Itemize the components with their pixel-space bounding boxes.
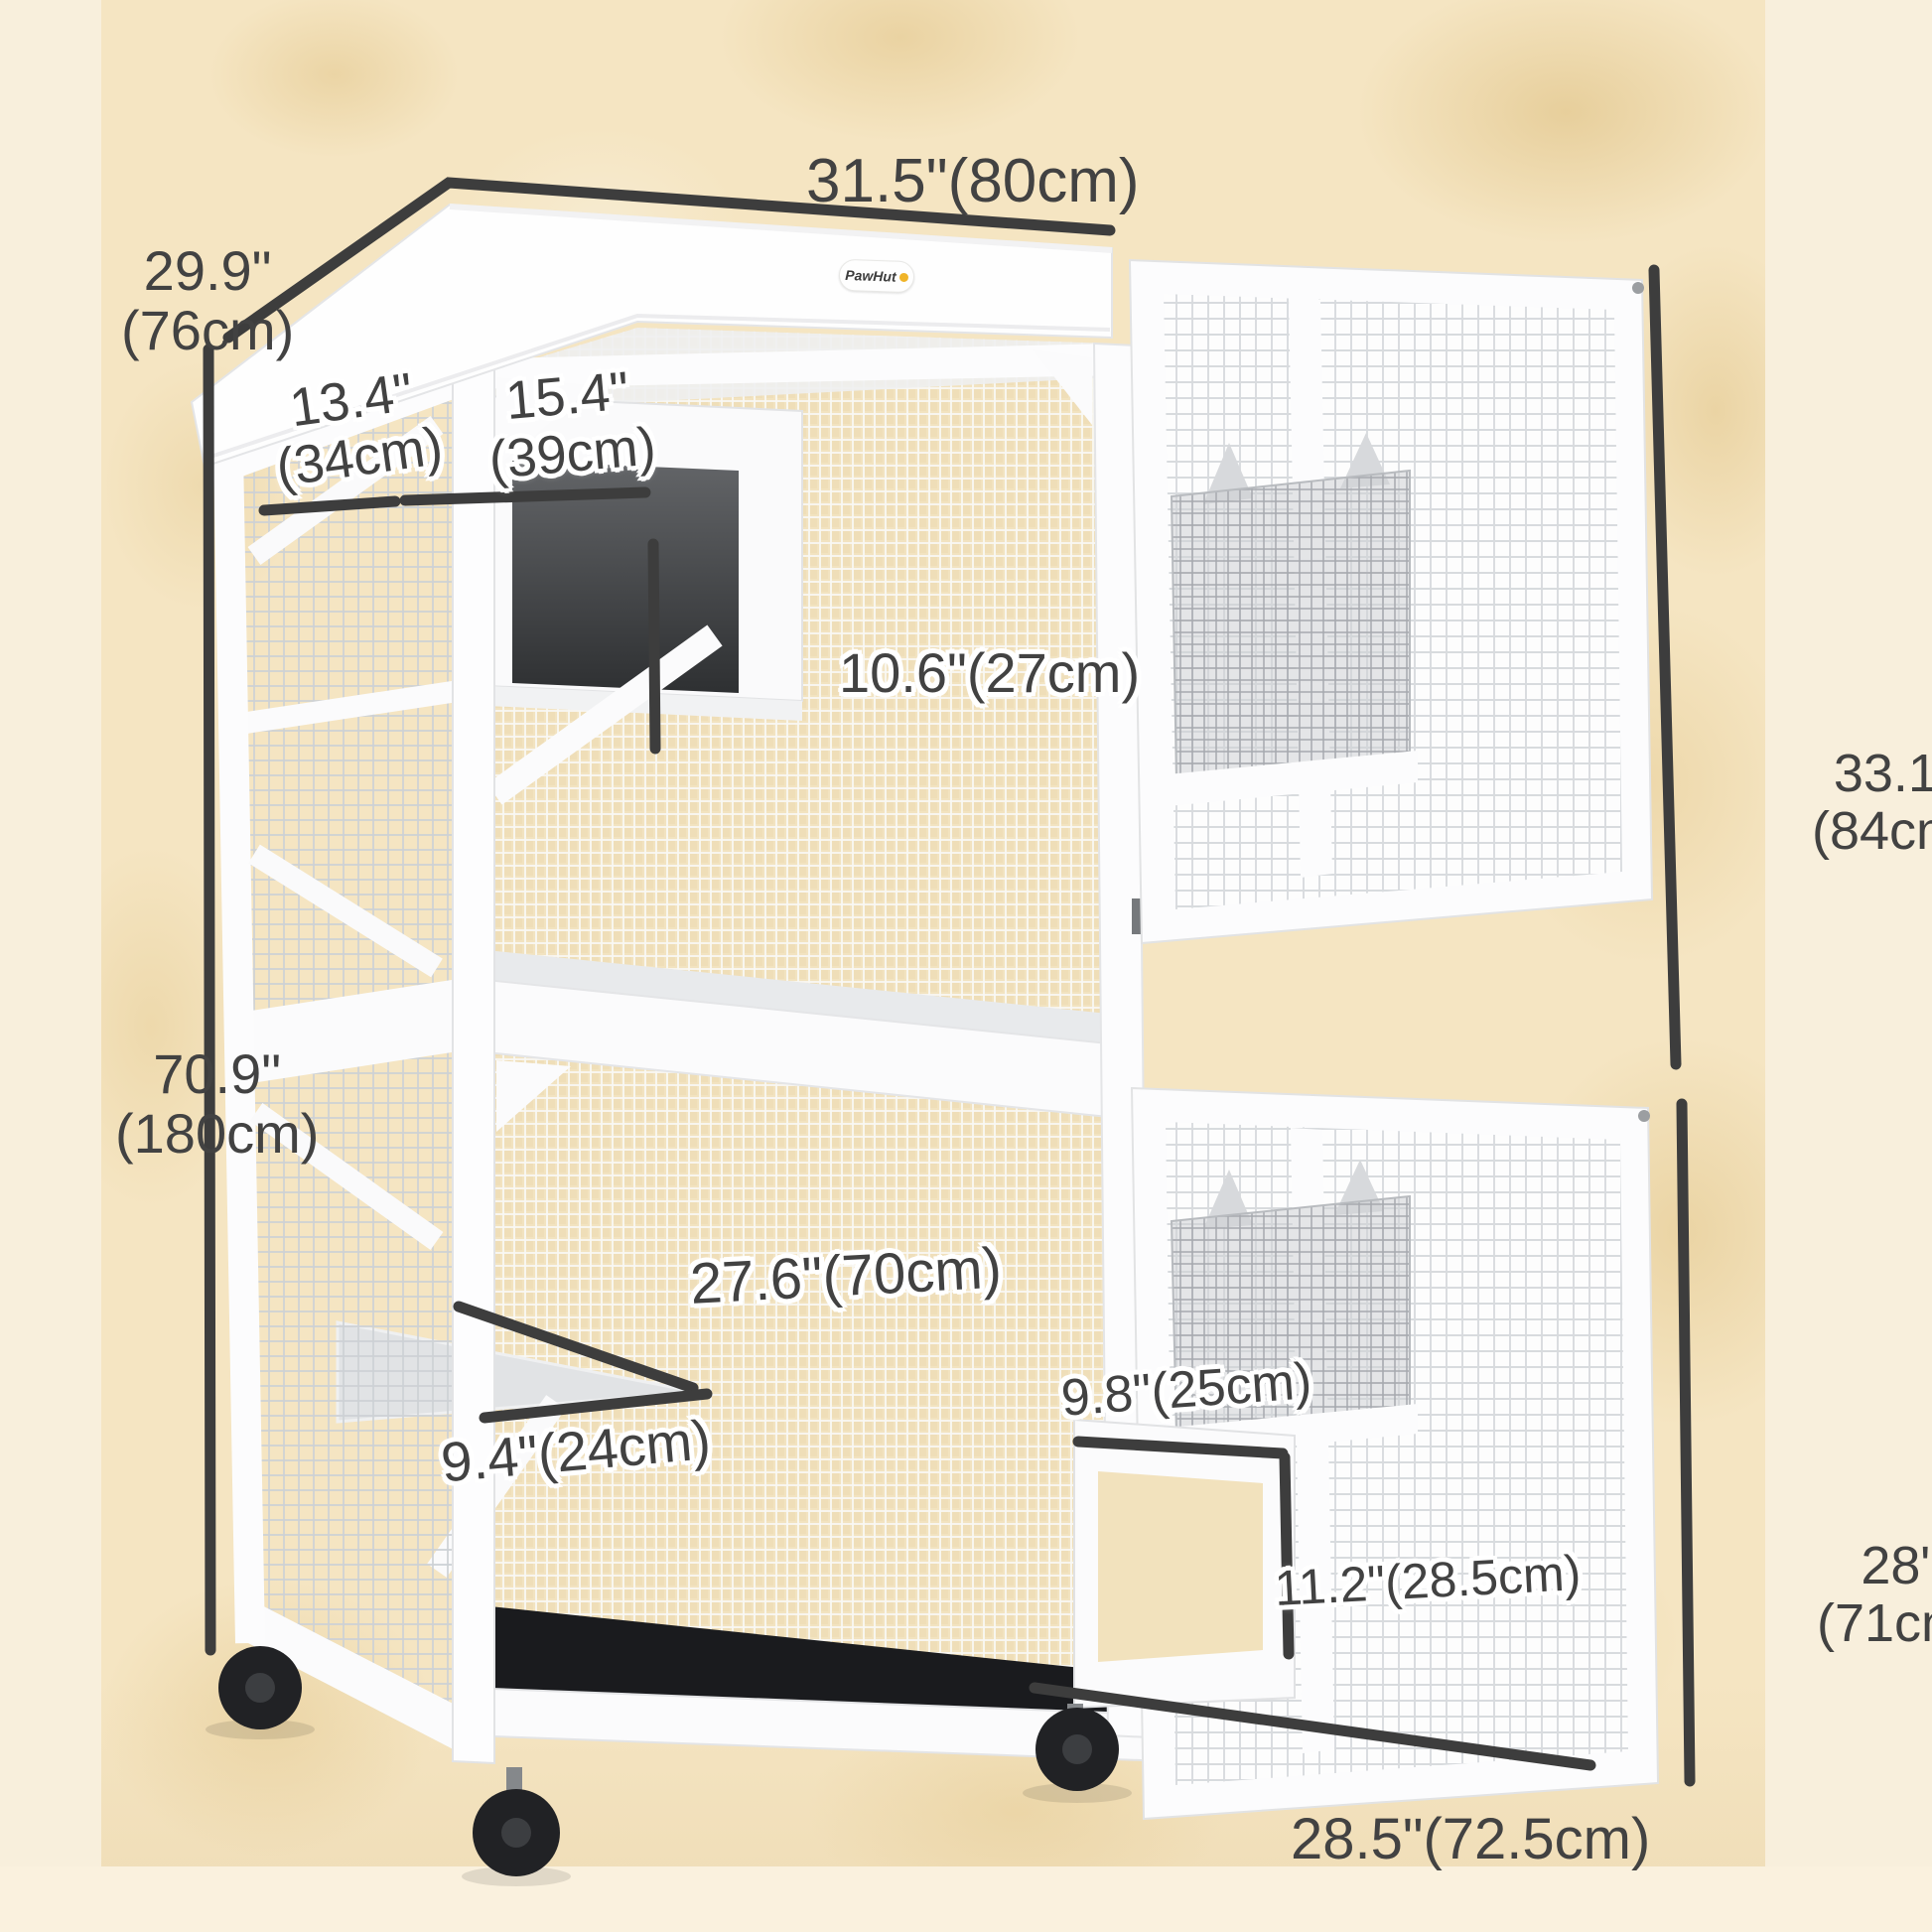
product-dimension-diagram: PawHut 31.5"(80cm) 29.9" (76cm) 13.4" (3… <box>0 0 1932 1932</box>
dim-upper-door-height-label: 33.1" (84cm) <box>1812 745 1932 861</box>
dim-line-lower-door-height <box>1682 1104 1690 1781</box>
dim-top-width-label: 31.5"(80cm) <box>806 149 1140 215</box>
upper-cat-hammock <box>1172 471 1410 782</box>
upper-door <box>1130 260 1652 943</box>
upper-door-pin <box>1632 282 1644 294</box>
cat-door <box>1074 1420 1295 1708</box>
dim-line-total-height <box>208 349 210 1650</box>
cat-door-opening <box>1098 1471 1263 1662</box>
lower-door-pin <box>1638 1110 1650 1122</box>
dim-total-height-label: 70.9" (180cm) <box>115 1044 319 1165</box>
dim-line-cat-door-height <box>1285 1457 1289 1654</box>
dim-line-upper-door-height <box>1654 270 1676 1064</box>
brand-logo-text: PawHut <box>845 267 897 285</box>
dim-condo-width-label: 15.4" (39cm) <box>482 360 658 490</box>
lower-back-mesh <box>467 1050 1120 1678</box>
dim-line-condo-door-height <box>653 544 655 749</box>
caster-front-left <box>462 1767 571 1886</box>
paw-icon <box>899 272 908 281</box>
brand-badge: PawHut <box>838 259 914 294</box>
dim-depth-label: 29.9" (76cm) <box>121 241 294 361</box>
dim-bottom-width-label: 28.5"(72.5cm) <box>1291 1809 1650 1871</box>
dim-lower-door-height-label: 28" (71cm) <box>1817 1537 1932 1653</box>
front-left-post <box>453 365 494 1763</box>
dim-condo-door-height-label: 10.6"(27cm) <box>839 643 1140 703</box>
dim-roof-left-depth-label: 13.4" (34cm) <box>265 360 447 498</box>
